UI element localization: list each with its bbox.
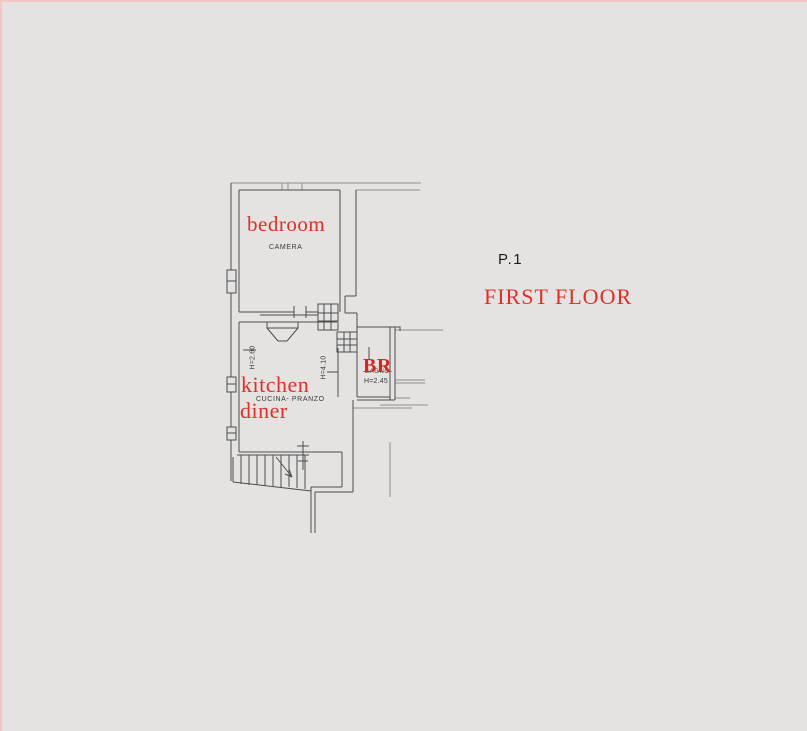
bathroom-height-label: H=2.45 bbox=[364, 378, 388, 385]
floorplan-page: bedroom CAMERA kitchen CUCINA- PRANZO di… bbox=[0, 0, 807, 731]
floor-plan-drawing bbox=[0, 0, 807, 731]
column-hatch-a bbox=[318, 304, 338, 330]
bedroom-label: bedroom bbox=[247, 214, 325, 235]
height-label-kitchen-left: H=2.60 bbox=[250, 343, 257, 373]
bathroom-label: BR bbox=[363, 356, 392, 376]
stair-direction-arrow-icon bbox=[276, 457, 292, 477]
bedroom-native-label: CAMERA bbox=[269, 244, 303, 251]
diner-label: diner bbox=[240, 400, 288, 422]
floor-title: FIRST FLOOR bbox=[484, 286, 632, 308]
height-label-kitchen-right: H=4.10 bbox=[321, 353, 328, 383]
window-symbol bbox=[227, 270, 236, 293]
kitchen-label: kitchen bbox=[241, 374, 309, 396]
column-hatch-b bbox=[337, 332, 357, 352]
cooker-hood-icon bbox=[267, 322, 298, 341]
stairs bbox=[233, 455, 311, 491]
window-symbol bbox=[227, 377, 236, 392]
window-symbol bbox=[227, 427, 236, 440]
floor-code: P.1 bbox=[498, 252, 523, 267]
